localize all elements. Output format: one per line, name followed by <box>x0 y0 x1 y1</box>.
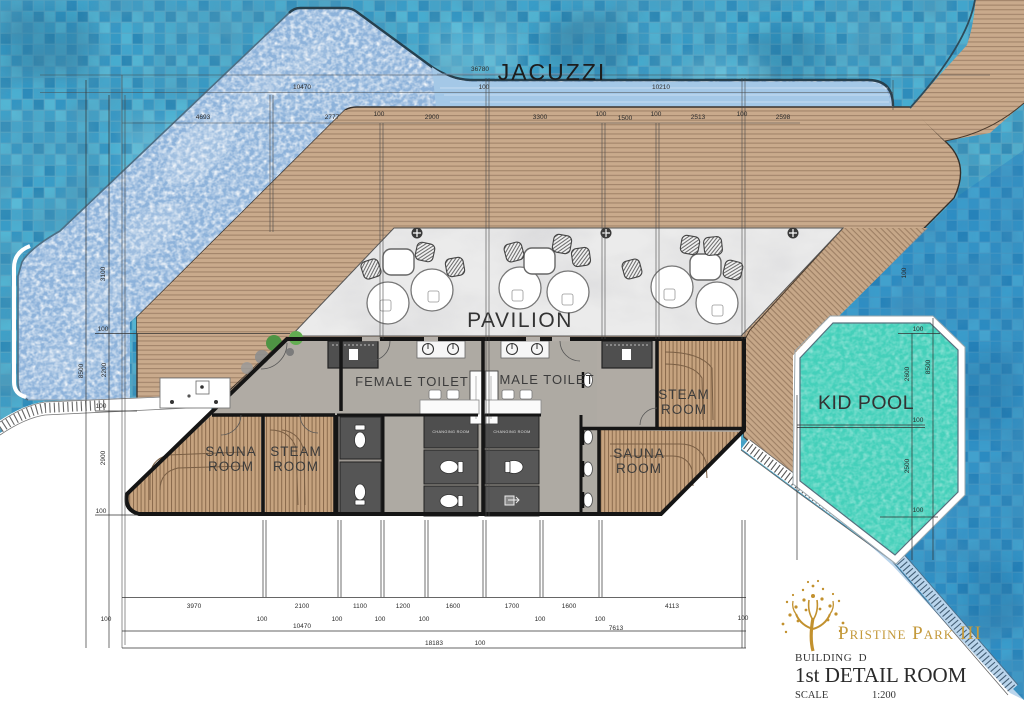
svg-text:100: 100 <box>475 640 486 647</box>
svg-text:8500: 8500 <box>78 363 85 378</box>
svg-text:18183: 18183 <box>425 640 443 647</box>
svg-text:2900: 2900 <box>425 114 440 121</box>
svg-text:2100: 2100 <box>295 603 310 610</box>
svg-text:ROOM: ROOM <box>273 459 319 474</box>
svg-text:100: 100 <box>535 616 546 623</box>
svg-text:CHANGING ROOM: CHANGING ROOM <box>493 430 530 434</box>
svg-text:KID POOL: KID POOL <box>818 392 914 414</box>
svg-text:ROOM: ROOM <box>208 459 254 474</box>
svg-text:100: 100 <box>96 508 107 515</box>
svg-text:ROOM: ROOM <box>616 461 662 476</box>
svg-text:7613: 7613 <box>609 625 624 632</box>
svg-text:100: 100 <box>913 417 924 424</box>
svg-text:100: 100 <box>737 111 748 118</box>
svg-text:2600: 2600 <box>904 366 911 381</box>
svg-text:2777: 2777 <box>325 114 340 121</box>
svg-text:4693: 4693 <box>196 114 211 121</box>
svg-text:100: 100 <box>419 616 430 623</box>
svg-text:2598: 2598 <box>776 114 791 121</box>
svg-text:JACUZZI: JACUZZI <box>498 59 607 85</box>
svg-text:STEAM: STEAM <box>270 444 322 459</box>
svg-text:10470: 10470 <box>293 84 311 91</box>
svg-text:FEMALE TOILET: FEMALE TOILET <box>355 374 469 389</box>
svg-text:10470: 10470 <box>293 623 311 630</box>
svg-text:100: 100 <box>913 507 924 514</box>
svg-text:100: 100 <box>595 616 606 623</box>
svg-text:36780: 36780 <box>471 66 489 73</box>
svg-text:1st DETAIL ROOM: 1st DETAIL ROOM <box>795 663 967 687</box>
svg-text:PAVILION: PAVILION <box>467 309 573 332</box>
svg-text:100: 100 <box>738 615 749 622</box>
svg-text:100: 100 <box>101 616 112 623</box>
svg-text:SAUNA: SAUNA <box>205 444 257 459</box>
svg-text:100: 100 <box>913 326 924 333</box>
svg-text:100: 100 <box>596 111 607 118</box>
svg-text:2900: 2900 <box>100 450 107 465</box>
svg-text:SCALE: SCALE <box>795 690 828 701</box>
svg-text:3300: 3300 <box>533 114 548 121</box>
svg-text:STEAM: STEAM <box>658 387 710 402</box>
svg-text:1100: 1100 <box>353 603 367 610</box>
svg-text:3100: 3100 <box>100 266 107 281</box>
svg-text:8500: 8500 <box>925 359 932 374</box>
svg-text:2200: 2200 <box>101 362 108 377</box>
svg-text:ROOM: ROOM <box>661 402 707 417</box>
svg-text:1600: 1600 <box>446 603 461 610</box>
svg-text:Pristine Park III: Pristine Park III <box>838 623 982 644</box>
svg-text:1700: 1700 <box>505 603 520 610</box>
svg-text:100: 100 <box>96 403 107 410</box>
svg-text:100: 100 <box>98 326 109 333</box>
svg-text:SAUNA: SAUNA <box>613 446 665 461</box>
svg-text:100: 100 <box>901 267 908 278</box>
svg-text:2500: 2500 <box>904 458 911 473</box>
svg-text:100: 100 <box>651 111 662 118</box>
svg-text:100: 100 <box>332 616 343 623</box>
svg-text:100: 100 <box>257 616 268 623</box>
svg-text:2513: 2513 <box>691 114 706 121</box>
svg-text:1200: 1200 <box>396 603 411 610</box>
svg-text:CHANGING ROOM: CHANGING ROOM <box>432 430 469 434</box>
svg-text:100: 100 <box>479 84 490 91</box>
svg-text:3970: 3970 <box>187 603 202 610</box>
svg-text:100: 100 <box>375 616 386 623</box>
svg-text:100: 100 <box>374 111 385 118</box>
svg-text:1600: 1600 <box>562 603 577 610</box>
svg-text:10210: 10210 <box>652 84 670 91</box>
svg-text:1:200: 1:200 <box>872 690 896 701</box>
svg-text:4113: 4113 <box>665 603 679 610</box>
svg-text:MALE TOILET: MALE TOILET <box>499 372 594 387</box>
svg-text:1500: 1500 <box>618 115 633 122</box>
